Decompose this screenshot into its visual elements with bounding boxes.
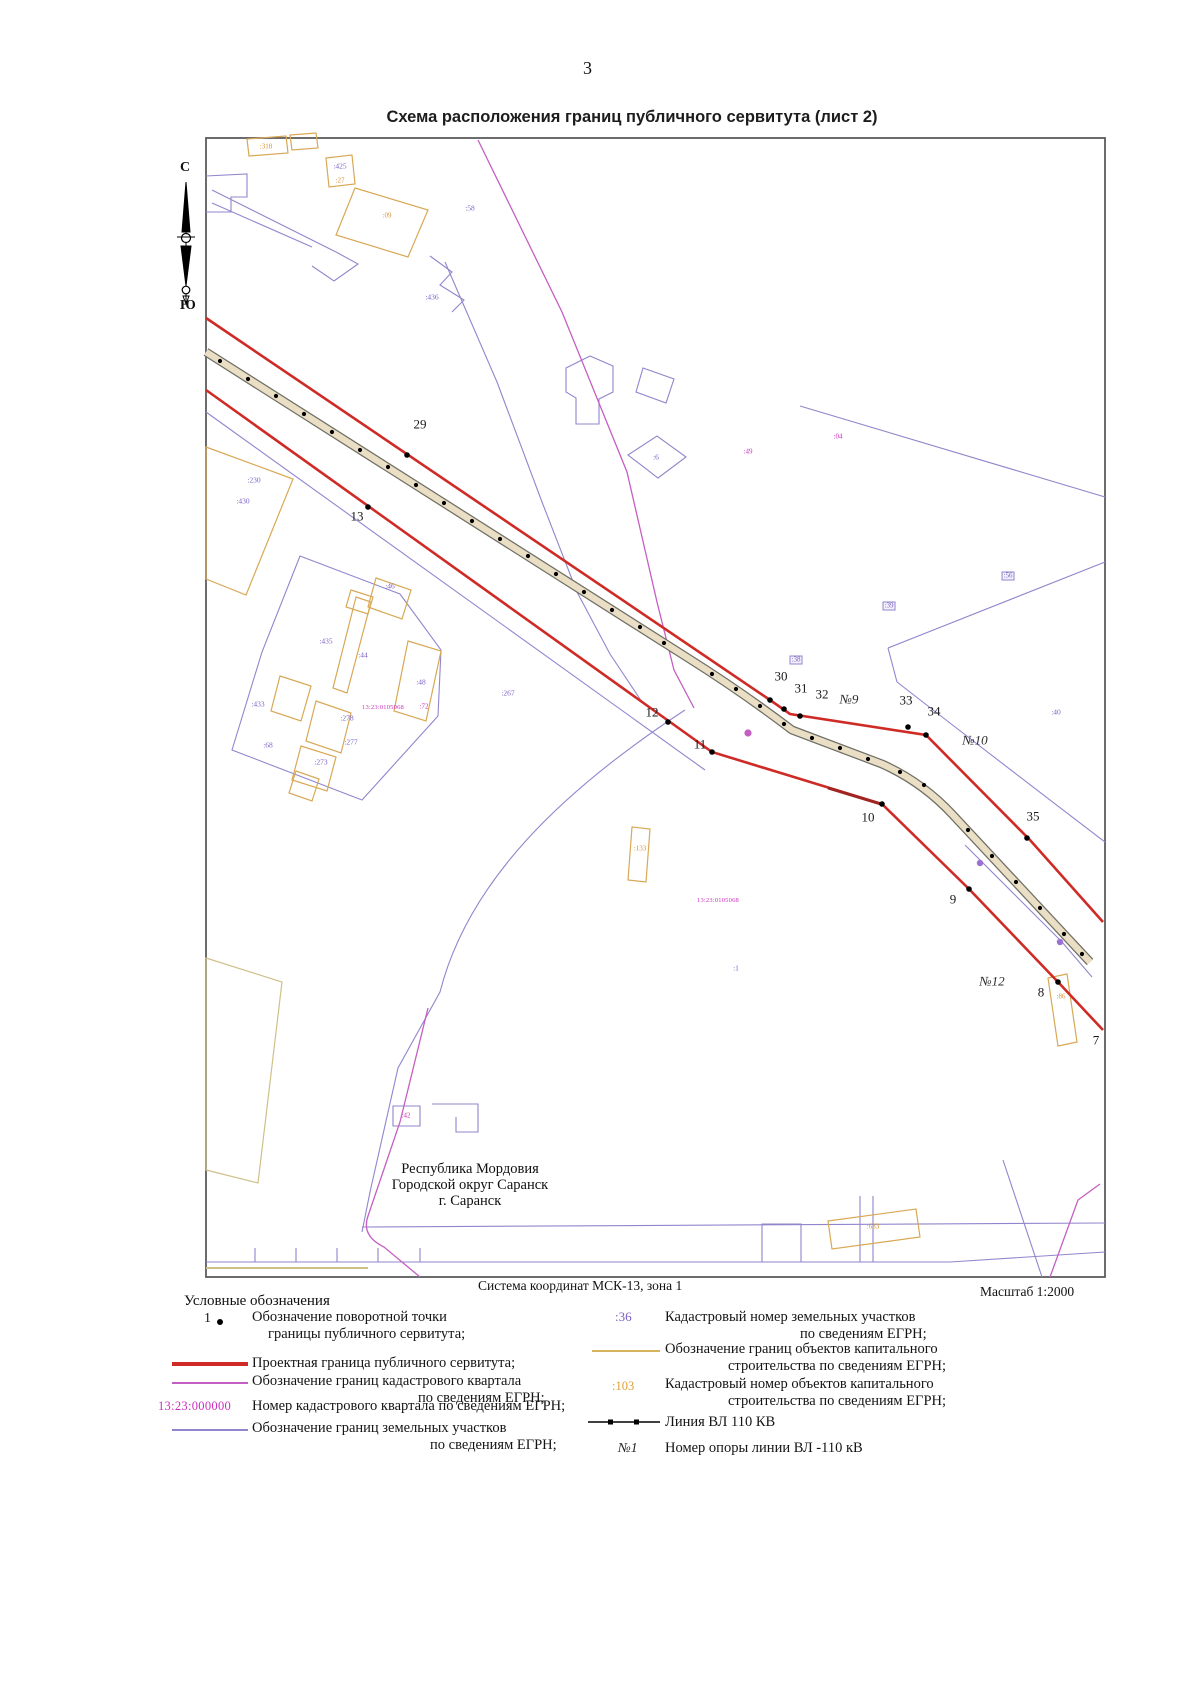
- map-label: 8: [1038, 986, 1045, 999]
- map-label: :277: [344, 738, 357, 746]
- map-label: :430: [236, 497, 249, 505]
- servitude-line-icon: [172, 1362, 248, 1366]
- construction-number-sample: :103: [612, 1380, 634, 1394]
- map-label: :6: [653, 453, 659, 461]
- legend-entry-point: Обозначение поворотной точки: [252, 1310, 447, 1326]
- map-label: :49: [744, 449, 753, 456]
- legend-entry-construction-number: Кадастровый номер объектов капитального: [665, 1377, 934, 1393]
- region-line: Городской округ Саранск: [340, 1178, 600, 1194]
- region-line: г. Саранск: [340, 1194, 600, 1210]
- map-label: :436: [425, 293, 438, 301]
- map-label: 13:23:0105068: [697, 898, 739, 905]
- map-label: :46: [385, 582, 395, 590]
- map-label: :04: [834, 434, 843, 441]
- legend-entry-quarter-border: Обозначение границ кадастрового квартала: [252, 1374, 521, 1390]
- map-label: :433: [251, 700, 264, 708]
- vl-line-icon: [588, 1417, 660, 1427]
- map-label: :278: [340, 714, 353, 722]
- map-label: 13:23:0105068: [362, 705, 404, 712]
- legend-entry-parcel-border: Обозначение границ земельных участков: [252, 1421, 506, 1437]
- map-label: :633: [867, 1224, 879, 1231]
- legend-entry-pylon-number: Номер опоры линии ВЛ -110 кВ: [665, 1441, 863, 1457]
- map-label: :273: [314, 758, 327, 766]
- map-label: :38: [790, 656, 803, 665]
- map-label: 33: [900, 694, 913, 707]
- parcel-line-icon: [172, 1429, 248, 1431]
- quarter-line-icon: [172, 1382, 248, 1384]
- map-label: :68: [263, 741, 273, 749]
- map-label: :267: [501, 689, 514, 697]
- map-label: 13: [351, 510, 364, 523]
- map-label: №10: [962, 734, 987, 747]
- map-label: :435: [319, 637, 332, 645]
- map-label: 11: [694, 738, 707, 751]
- map-label: №12: [979, 975, 1004, 988]
- map-label: 12: [646, 706, 659, 719]
- legend-entry-quarter-number: Номер кадастрового квартала по сведениям…: [252, 1399, 565, 1415]
- legend-entry-construction-number-cont: строительства по сведениям ЕГРН;: [728, 1394, 946, 1410]
- map-label: :39: [883, 602, 896, 611]
- legend-entry-parcel-number: Кадастровый номер земельных участков: [665, 1310, 916, 1326]
- map-label: 9: [950, 893, 957, 906]
- map-label: 34: [928, 705, 941, 718]
- map-label: 32: [816, 688, 829, 701]
- map-label: :09: [383, 213, 392, 220]
- legend-title: Условные обозначения: [184, 1293, 330, 1310]
- map-label: 31: [795, 682, 808, 695]
- map-label: :72: [420, 704, 429, 711]
- region-line: Республика Мордовия: [340, 1162, 600, 1178]
- legend-entry-point-cont: границы публичного сервитута;: [268, 1327, 465, 1343]
- legend-entry-servitude: Проектная граница публичного сервитута;: [252, 1356, 515, 1372]
- map-label: 30: [775, 670, 788, 683]
- point-marker-icon: [217, 1319, 223, 1325]
- map-label: :27: [336, 178, 345, 185]
- map-label: :48: [416, 678, 426, 686]
- map-label: :58: [465, 204, 475, 212]
- document-page: 3 Схема расположения границ публичного с…: [0, 0, 1200, 1697]
- parcel-number-sample: :36: [615, 1310, 632, 1324]
- pylon-number-sample: №1: [618, 1441, 637, 1456]
- legend-entry-construction-border: Обозначение границ объектов капитального: [665, 1342, 938, 1358]
- map-label: :56: [1002, 572, 1015, 581]
- map-label: :133: [634, 846, 646, 853]
- legend-point-symbol: 1: [204, 1311, 211, 1326]
- map-label: :1: [733, 964, 739, 972]
- map-labels-layer: 2913303132№93334№10351211109№128713:23:0…: [0, 0, 1200, 1697]
- construction-line-icon: [592, 1350, 660, 1352]
- map-label: :42: [402, 1113, 411, 1120]
- map-label: 29: [414, 418, 427, 431]
- map-label: 10: [862, 811, 875, 824]
- legend-entry-construction-border-cont: строительства по сведениям ЕГРН;: [728, 1359, 946, 1375]
- map-label: :425: [333, 162, 346, 170]
- scale-note: Масштаб 1:2000: [980, 1284, 1074, 1300]
- coordinate-system-note: Система координат МСК-13, зона 1: [478, 1278, 682, 1294]
- quarter-number-sample: 13:23:000000: [158, 1400, 231, 1414]
- region-text: Республика Мордовия Городской округ Сара…: [340, 1162, 600, 1210]
- map-label: :44: [358, 651, 368, 659]
- map-label: :230: [247, 476, 260, 484]
- legend-entry-vl-line: Линия ВЛ 110 КВ: [665, 1415, 775, 1431]
- map-label: :318: [260, 144, 272, 151]
- map-label: 7: [1093, 1034, 1100, 1047]
- map-label: :40: [1051, 708, 1061, 716]
- map-label: №9: [840, 693, 859, 706]
- map-label: 35: [1027, 810, 1040, 823]
- map-label: :86: [1057, 994, 1066, 1001]
- legend-entry-parcel-border-cont: по сведениям ЕГРН;: [430, 1438, 557, 1454]
